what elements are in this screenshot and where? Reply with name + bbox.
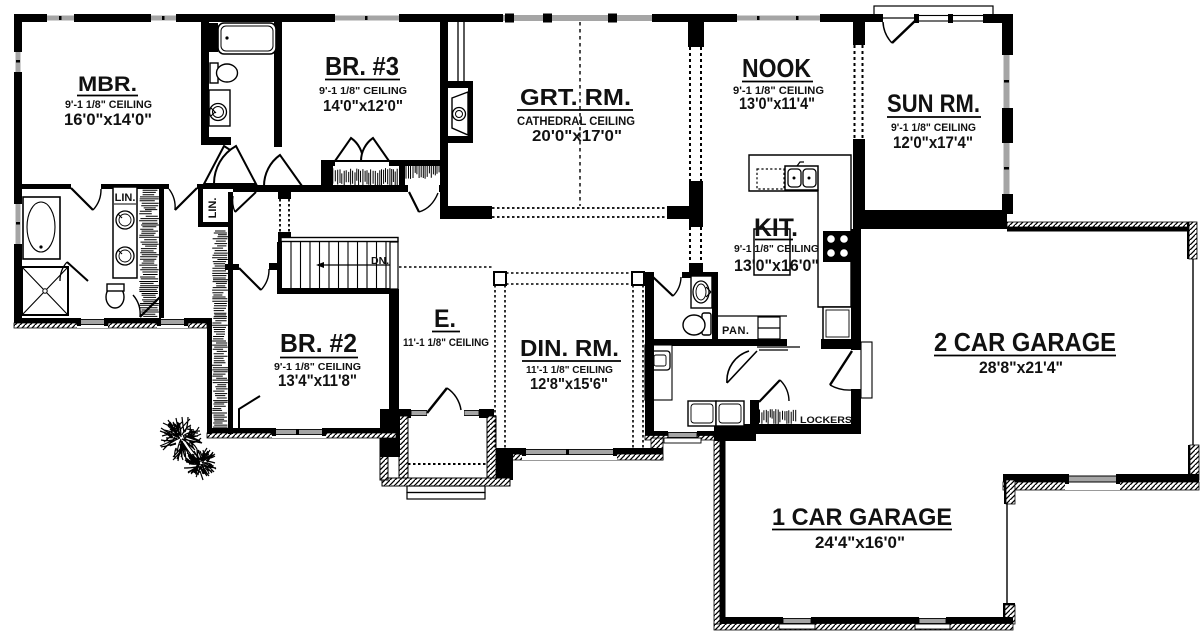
svg-text:1 CAR GARAGE: 1 CAR GARAGE — [772, 504, 952, 531]
svg-text:9'-1 1/8" CEILING: 9'-1 1/8" CEILING — [65, 99, 152, 111]
svg-text:MBR.: MBR. — [78, 73, 137, 96]
svg-text:9'-1 1/8" CEILING: 9'-1 1/8" CEILING — [891, 122, 976, 134]
svg-text:E.: E. — [434, 305, 456, 333]
svg-text:DIN. RM.: DIN. RM. — [520, 335, 619, 361]
svg-text:BR. #3: BR. #3 — [325, 51, 399, 81]
svg-text:BR. #2: BR. #2 — [280, 328, 357, 358]
svg-text:13'0"x11'4": 13'0"x11'4" — [739, 95, 815, 113]
svg-text:16'0"x14'0": 16'0"x14'0" — [64, 111, 152, 129]
svg-text:11'-1 1/8" CEILING: 11'-1 1/8" CEILING — [526, 364, 613, 376]
svg-text:9'-1 1/8" CEILING: 9'-1 1/8" CEILING — [319, 85, 407, 97]
svg-text:13'4"x11'8": 13'4"x11'8" — [278, 372, 357, 390]
svg-text:9'-1 1/8" CEILING: 9'-1 1/8" CEILING — [734, 243, 819, 255]
svg-text:28'8"x21'4": 28'8"x21'4" — [979, 359, 1063, 377]
svg-text:CATHEDRAL CEILING: CATHEDRAL CEILING — [517, 114, 635, 128]
svg-text:24'4"x16'0": 24'4"x16'0" — [815, 534, 905, 552]
svg-text:LOCKERS: LOCKERS — [800, 415, 852, 426]
svg-text:11'-1 1/8" CEILING: 11'-1 1/8" CEILING — [403, 337, 489, 349]
svg-text:20'0"x17'0": 20'0"x17'0" — [532, 128, 622, 145]
svg-text:12'0"x17'4": 12'0"x17'4" — [893, 134, 973, 152]
svg-text:LIN.: LIN. — [115, 192, 136, 204]
svg-text:2 CAR GARAGE: 2 CAR GARAGE — [934, 327, 1116, 357]
svg-text:GRT. RM.: GRT. RM. — [520, 84, 631, 110]
svg-text:PAN.: PAN. — [722, 325, 749, 337]
svg-text:14'0"x12'0": 14'0"x12'0" — [323, 98, 403, 115]
svg-text:SUN RM.: SUN RM. — [887, 90, 980, 118]
svg-text:13'0"x16'0": 13'0"x16'0" — [734, 257, 819, 275]
svg-text:LIN.: LIN. — [207, 198, 219, 219]
svg-text:KIT.: KIT. — [754, 214, 798, 242]
svg-text:NOOK: NOOK — [742, 53, 811, 83]
svg-text:12'8"x15'6": 12'8"x15'6" — [530, 376, 608, 393]
